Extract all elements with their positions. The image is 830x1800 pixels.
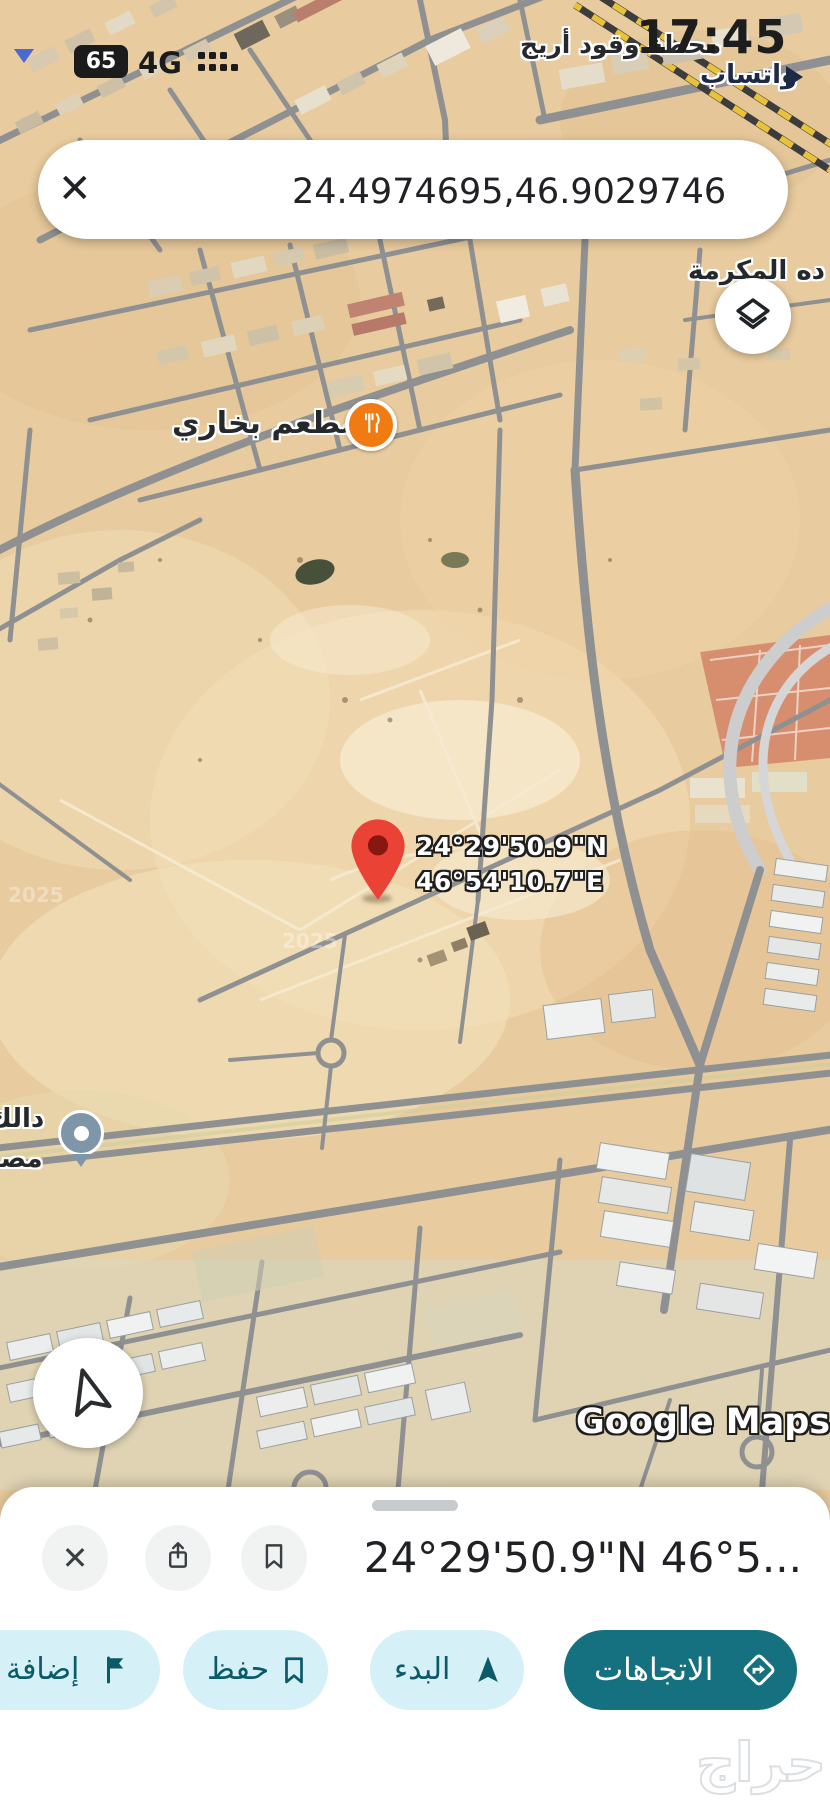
layers-icon [732,293,774,339]
share-icon [161,1539,195,1577]
bottom-sheet[interactable]: ✕ 24°29'50.9"N 46°5... الاتجاهات ا [0,1487,830,1800]
navigation-arrow-icon [61,1364,115,1422]
status-time: 17:45 [636,10,787,64]
imagery-year-watermark: 2025 [8,883,64,907]
save-bookmark-icon [276,1652,312,1692]
google-maps-watermark: Google Maps [576,1402,830,1442]
save-button[interactable]: حفظ [183,1630,328,1710]
start-navigation-icon [470,1652,506,1692]
pin-coordinates-line1: 24°29'50.9"N [416,832,607,861]
start-navigation-button[interactable]: البدء [370,1630,524,1710]
pin-coordinates-line2: 46°54'10.7"E [416,867,604,896]
poi-marker-dot [74,1126,89,1141]
left-partial-label-top: دالك [0,1104,44,1134]
sheet-drag-handle[interactable] [372,1500,458,1511]
restaurant-label: مطعم بخاري [172,406,360,441]
phone-screen: { "status_bar": { "battery": "65", "netw… [0,0,830,1800]
sheet-close-button[interactable]: ✕ [42,1525,108,1591]
battery-indicator: 65 [74,45,128,78]
search-close-button[interactable]: ✕ [58,166,92,212]
my-location-button[interactable] [33,1338,143,1448]
bookmark-button[interactable] [241,1525,307,1591]
sheet-title: 24°29'50.9"N 46°5... [364,1533,802,1582]
flag-icon [98,1652,134,1692]
dropped-pin[interactable] [350,818,406,906]
close-icon: ✕ [62,1539,89,1577]
add-label-button[interactable]: إضافة [0,1630,160,1710]
restaurant-icon [356,408,386,442]
search-query[interactable]: 24.4974695,46.9029746 [292,172,726,212]
signal-grid-icon [198,50,240,82]
left-partial-label-bottom: مصـ [0,1144,43,1174]
haraj-watermark: حراج [696,1731,826,1794]
share-button[interactable] [145,1525,211,1591]
imagery-year-watermark-2: 2025 [282,929,338,953]
play-triangle-icon [786,66,803,88]
network-type: 4G [138,46,182,80]
restaurant-marker[interactable] [345,399,397,451]
whatsapp-label: واتساب [700,60,797,90]
directions-button[interactable]: الاتجاهات [564,1630,797,1710]
bookmark-icon [257,1539,291,1577]
poi-marker-slate[interactable] [58,1110,104,1156]
directions-icon [739,1650,779,1694]
layers-button[interactable] [715,278,791,354]
